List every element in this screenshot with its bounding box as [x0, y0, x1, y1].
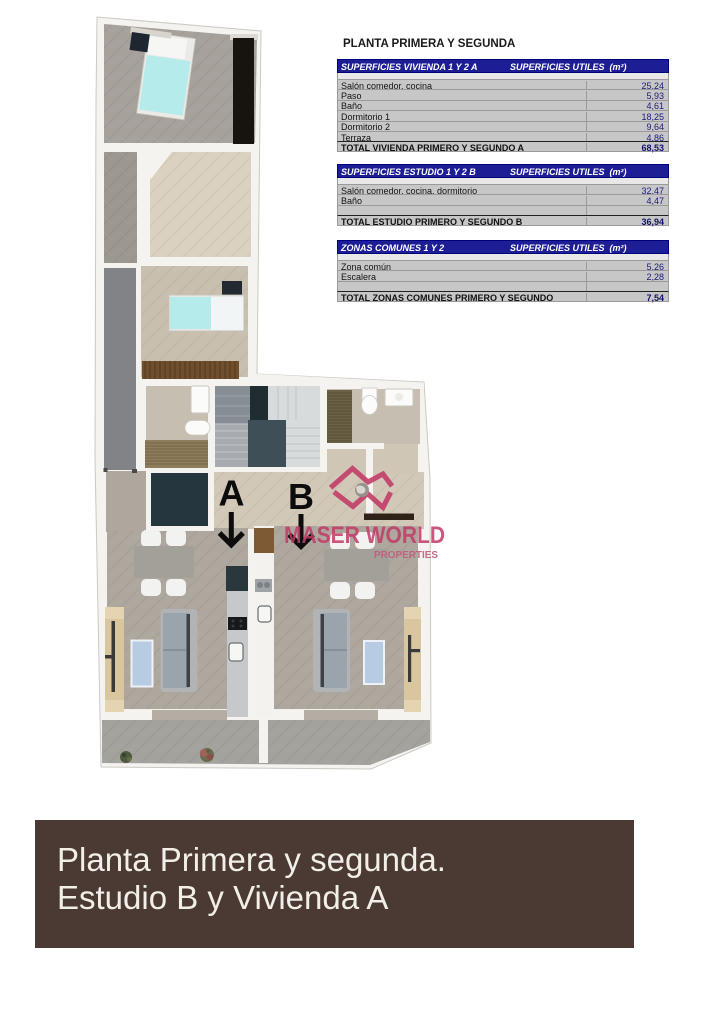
svg-text:A: A — [219, 473, 245, 514]
svg-text:MASER WORLD: MASER WORLD — [284, 522, 445, 549]
svg-text:B: B — [288, 476, 314, 517]
svg-text:PROPERTIES: PROPERTIES — [374, 549, 438, 561]
